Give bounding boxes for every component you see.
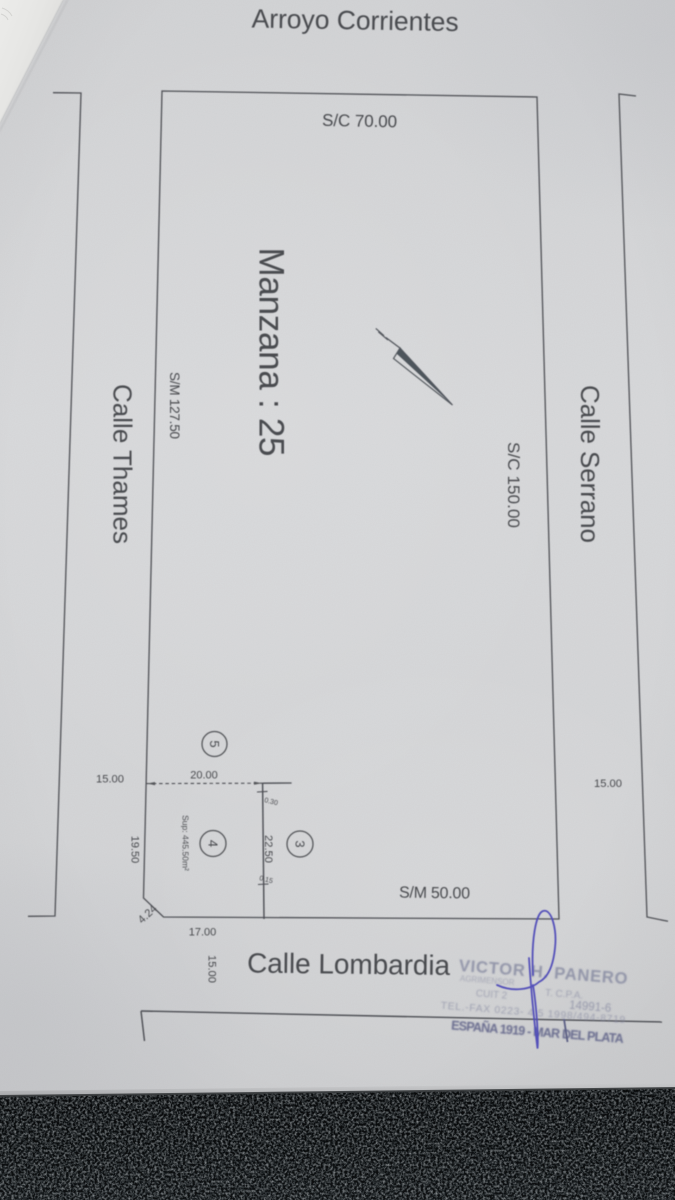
svg-text:Calle Lombardia: Calle Lombardia: [247, 948, 451, 981]
svg-text:S/M 50.00: S/M 50.00: [399, 885, 470, 903]
svg-text:S/C 70.00: S/C 70.00: [322, 111, 397, 132]
svg-text:5: 5: [207, 740, 222, 747]
svg-text:17.00: 17.00: [189, 927, 217, 939]
svg-text:Sup: 445.50m²: Sup: 445.50m²: [181, 815, 191, 871]
svg-text:4: 4: [205, 840, 220, 847]
svg-text:15.00: 15.00: [96, 774, 124, 786]
svg-text:15.00: 15.00: [206, 955, 218, 983]
svg-text:Arroyo Corrientes: Arroyo Corrientes: [251, 4, 458, 38]
svg-text:15.00: 15.00: [594, 778, 622, 790]
svg-text:Calle Thames: Calle Thames: [108, 384, 138, 544]
svg-text:S/C 150.00: S/C 150.00: [504, 442, 523, 528]
svg-text:20.00: 20.00: [190, 770, 218, 782]
svg-text:Manzana : 25: Manzana : 25: [252, 248, 291, 457]
svg-text:19.50: 19.50: [129, 836, 141, 864]
svg-text:S/M 127.50: S/M 127.50: [167, 372, 182, 439]
svg-text:Calle Serrano: Calle Serrano: [575, 385, 605, 543]
svg-text:3: 3: [292, 840, 307, 847]
svg-text:22.50: 22.50: [262, 835, 274, 863]
